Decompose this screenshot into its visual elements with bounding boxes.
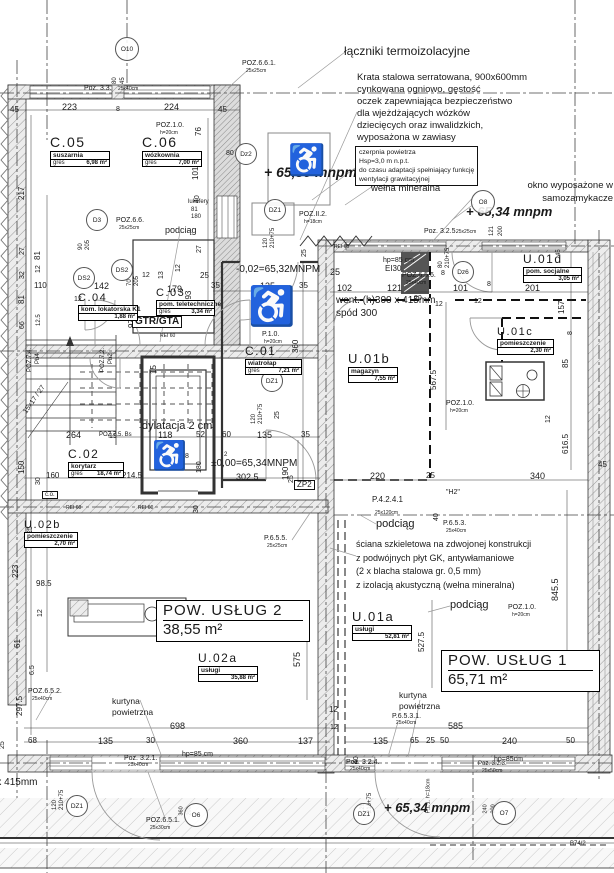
ref-symbol: DS2	[73, 267, 95, 289]
dim-label: POZ.6.5.2.	[28, 688, 62, 695]
dim-label: hp=85 cm	[182, 751, 213, 758]
dim-label: 135	[98, 737, 113, 746]
room-label: C.05suszarniagres6,98 m²	[50, 134, 110, 167]
room-name: korytarz	[69, 463, 123, 471]
room-id: C.06	[142, 134, 202, 150]
dim-label: REI 60	[160, 334, 175, 339]
dim-label: 210+75	[270, 228, 276, 248]
dim-label: 45	[218, 106, 227, 114]
dim-label: POZ.6.5.6.	[402, 272, 436, 279]
annotation-line: oczek zapewniająca bezpieczeństwo	[357, 96, 527, 108]
room-info-box: usługi52,81 m²	[352, 625, 412, 641]
dim-label: 302.5	[236, 473, 259, 482]
annotation-line: okno wyposażone w	[478, 179, 613, 192]
annotation-line: czerpnia powietrza	[359, 148, 474, 157]
dim-label: c.o.	[42, 491, 58, 499]
dim-label: 2	[224, 452, 227, 458]
dim-label: 12	[545, 415, 552, 423]
dim-label: 210+75	[59, 790, 65, 810]
dim-label: 210+75	[445, 248, 451, 268]
room-id: C.01	[245, 344, 302, 358]
room-name: usługi	[353, 626, 411, 634]
room-name: pom. teletechniczne	[157, 301, 214, 309]
dim-label: 19	[109, 433, 117, 440]
annotation-line: powietrzna	[399, 701, 440, 712]
dim-label: 25x30cm	[150, 826, 170, 831]
dim-label: 15	[150, 365, 158, 374]
annotation-line: spód 300	[0, 789, 38, 802]
dim-label: 12	[330, 724, 338, 731]
dim-label: 45	[598, 461, 607, 469]
ref-symbol: D3	[86, 209, 108, 231]
ref-symbol: O7	[492, 801, 516, 825]
dim-label: 25	[426, 472, 435, 480]
room-id: U.01d	[523, 252, 582, 266]
annotation-line: kurtyna	[399, 690, 440, 701]
annotation-line: Hsp=3,0 m n.p.t.	[359, 157, 474, 166]
dim-label: POZ.1.0.	[508, 604, 536, 611]
dim-label: EI30	[385, 265, 401, 273]
room-area-row: gres3,34 m²	[157, 309, 214, 315]
dim-label: 8	[116, 106, 120, 113]
dim-label: 102	[337, 284, 352, 293]
dim-label: 25	[0, 741, 6, 749]
room-name: wózkownia	[143, 152, 201, 160]
dim-label: 12	[37, 609, 44, 617]
dim-label: 135	[257, 431, 272, 440]
room-area: 18,74 m²	[97, 471, 121, 477]
dim-label: 240	[484, 804, 490, 813]
room-area-row: gres18,74 m²	[69, 471, 123, 477]
dim-label: 85	[562, 359, 570, 368]
dim-label: 68	[28, 737, 37, 745]
dim-label: 120	[52, 800, 58, 810]
dim-label: 120	[251, 414, 257, 424]
dim-label: 80	[112, 77, 118, 84]
annotation: łączniki termoizolacyjne	[344, 44, 470, 59]
room-area: 2,30 m²	[530, 348, 551, 354]
dim-label: 223	[12, 565, 20, 578]
room-area: 1,88 m²	[114, 314, 135, 320]
area-title: POW. USŁUG 2	[163, 602, 303, 619]
dim-label: 45	[120, 77, 126, 84]
room-info-box: kom. lokatorska K11,88 m²	[78, 305, 138, 321]
dim-label: 101	[453, 284, 468, 293]
dim-label: 27	[19, 247, 26, 255]
dim-label: 527.5	[418, 632, 426, 652]
dim-label: 121	[489, 226, 495, 236]
dim-label: 25x120cm	[375, 511, 398, 516]
dim-label: 25x40cm	[396, 721, 416, 726]
room-id: U.02a	[198, 651, 258, 665]
dim-label: 40	[433, 513, 440, 521]
annotation-line: spód 300	[336, 307, 436, 320]
dim-label: POZ.6.6.	[116, 217, 144, 224]
room-area: 3,34 m²	[191, 309, 212, 315]
dim-label: 32	[19, 271, 26, 279]
dim-label: POZ.6.6.1.	[242, 60, 276, 67]
room-info-box: pomieszczenie2,70 m²	[24, 532, 78, 548]
ref-symbol: O6	[184, 803, 208, 827]
pavement-band	[0, 798, 614, 868]
dim-label: POZ.1.0.	[446, 400, 474, 407]
dim-label: 52	[196, 431, 205, 439]
room-label: C.03pom. teletechnicznegres3,34 m²	[156, 287, 215, 316]
dim-label: 223	[62, 103, 77, 112]
dim-label: h=20cm	[450, 409, 468, 414]
dim-label: luksfery	[188, 199, 209, 205]
dim-label: Poz. 3.2.5.	[424, 228, 457, 235]
room-label: U.01dpom. socjalne3,05 m²	[523, 252, 582, 283]
dim-label: 25x25cm	[267, 544, 287, 549]
dim-label: Pb2	[108, 353, 114, 364]
dim-label: P.6.5.5.	[264, 535, 287, 542]
dim-label: 45	[10, 106, 19, 114]
room-label: C.04kom. lokatorska K11,88 m²	[78, 292, 138, 321]
dim-label: 224	[164, 103, 179, 112]
room-label: C.02korytarzgres18,74 m²	[68, 447, 124, 478]
room-label: U.01ausługi52,81 m²	[352, 609, 412, 641]
dim-label: 81	[34, 251, 42, 260]
dim-label: 205	[85, 240, 91, 250]
dim-label: 30	[146, 737, 155, 745]
dim-label: 567.5	[430, 370, 438, 390]
ref-symbol: DZ1	[66, 795, 88, 817]
dim-label: 360	[233, 737, 248, 746]
dim-label: 61	[14, 639, 22, 648]
annotation: ściana szkieletowa na zdwojonej konstruk…	[356, 538, 531, 592]
room-label: C.01wiatrołapgres7,21 m²	[245, 344, 302, 375]
dim-label: 25x40cm	[32, 697, 52, 702]
annotation: kurtynapowietrzna	[399, 690, 440, 712]
room-label: U.02bpomieszczenie2,70 m²	[24, 519, 78, 548]
dim-label: 25	[200, 272, 209, 280]
room-name: pom. socjalne	[524, 268, 581, 276]
dim-label: 30	[35, 477, 42, 485]
room-name: pomieszczenie	[25, 533, 77, 541]
dim-label: POZ.7.4.	[27, 348, 33, 372]
dim-label: 180	[196, 461, 203, 473]
dim-label: 60	[222, 431, 231, 439]
dim-label: 210+75	[258, 404, 264, 424]
room-area-row: 7,55 m²	[349, 376, 397, 382]
annotation: czerpnia powietrzaHsp=3,0 m n.p.t.do cza…	[355, 146, 478, 186]
annotation: Krata stalowa serratowana, 900x600mmcynk…	[357, 72, 527, 144]
annotation-line: kurtyna	[112, 696, 153, 707]
room-finish: gres	[159, 309, 171, 315]
dim-label: 25x40cm	[446, 529, 466, 534]
dim-label: 25	[301, 249, 308, 257]
dim-label: 101	[192, 167, 200, 180]
ref-symbol: O10	[115, 37, 139, 61]
room-label: U.02ausługi35,88 m²	[198, 651, 258, 682]
annotation: okno wyposażone wsamozamykacze	[478, 179, 613, 205]
dim-label: 142	[94, 282, 109, 291]
room-name: suszarnia	[51, 152, 109, 160]
room-area: 6,98 m²	[86, 160, 107, 166]
dim-label: POZ.II.2.	[299, 211, 327, 218]
dim-label: 25	[426, 737, 435, 745]
dim-label: P.6.5.3.1.	[392, 713, 421, 720]
annotation-line: z podwójnych płyt GK, antywłamaniowe	[356, 552, 531, 566]
dim-label: 118	[158, 431, 172, 440]
dim-label: 845.5	[551, 578, 560, 601]
dim-label: 12	[175, 264, 182, 272]
ref-symbol: Dz6	[452, 261, 474, 283]
dim-label: 81	[18, 295, 26, 304]
dim-label: 27	[196, 245, 203, 253]
annotation-line: do czasu adaptacji spełniający funkcję	[359, 166, 474, 175]
room-area-row: 52,81 m²	[353, 634, 411, 640]
dim-label: 8	[487, 281, 491, 288]
room-name: pomieszczenie	[498, 340, 553, 348]
room-id: U.01b	[348, 351, 398, 366]
room-info-box: pom. socjalne3,05 m²	[523, 267, 582, 283]
annotation: went. (h)300 x 415mmspód 300	[336, 294, 436, 320]
dim-label: GTR/GTA	[132, 316, 182, 328]
dim-label: 40	[353, 756, 360, 764]
room-id: U.01c	[497, 326, 554, 338]
dim-label: 25x40cm	[350, 767, 370, 772]
room-finish: gres	[145, 160, 157, 166]
room-finish: gres	[71, 471, 83, 477]
dim-label: 135	[373, 737, 388, 746]
dim-label: podciąg	[450, 600, 489, 611]
annotation: went. (h)300 x 415mmspód 300	[0, 776, 38, 802]
room-area-row: 3,05 m²	[524, 276, 581, 282]
room-area-row: 2,70 m²	[25, 541, 77, 547]
dim-label: 65	[410, 737, 419, 745]
area-title: POW. USŁUG 1	[448, 652, 593, 669]
dim-label: 150	[18, 461, 26, 474]
dim-label: B74/2	[570, 841, 586, 847]
dim-label: 220	[370, 472, 385, 481]
annotation-line: łączniki termoizolacyjne	[344, 44, 470, 59]
dim-label: 35	[299, 282, 308, 290]
room-finish: gres	[248, 368, 260, 374]
annotation-line: powietrzna	[112, 707, 153, 718]
room-info-box: pomieszczenie2,30 m²	[497, 339, 554, 355]
dim-label: 25	[330, 268, 340, 277]
dim-label: 80	[226, 150, 234, 157]
dim-label: REI 60	[334, 245, 349, 250]
dim-label: 240	[502, 737, 517, 746]
room-area: 2,70 m²	[54, 541, 75, 547]
dim-label: P.4.2.4.1	[372, 496, 403, 504]
dim-label: 585	[448, 722, 463, 731]
dim-label: h=18cm	[304, 220, 322, 225]
annotation-line: dziecięcych oraz inwalidzkich,	[357, 120, 527, 132]
dim-label: 214.5	[122, 472, 142, 480]
annotation-line: samozamykacze	[478, 192, 613, 205]
dim-label: 13	[158, 271, 165, 279]
floor-plan-page: 45223822445768045Poz. 3.3.25x40cmPOZ.6.6…	[0, 0, 614, 873]
room-finish: gres	[53, 160, 65, 166]
dim-label: REI 60	[66, 506, 81, 511]
usable-area-box: POW. USŁUG 165,71 m²	[441, 650, 600, 692]
dim-label: 217	[18, 187, 26, 200]
room-id: C.05	[50, 134, 110, 150]
dim-label: 121	[387, 284, 402, 293]
dim-label: Pb4	[35, 353, 41, 364]
dim-label: 12	[329, 706, 338, 714]
dim-label: Poz. 3.2.1.	[124, 755, 157, 762]
insulation-zigzag	[1, 88, 8, 520]
annotation: wełna mineralna	[371, 183, 440, 195]
annotation-line: went. (h)300 x 415mm	[0, 776, 38, 789]
dim-label: 81	[191, 207, 198, 213]
room-name: usługi	[199, 667, 257, 675]
dim-label: 50	[440, 737, 449, 745]
dim-label: "H2"	[446, 489, 460, 496]
room-label: U.01cpomieszczenie2,30 m²	[497, 326, 554, 355]
annotation-line: went. (h)300 x 415mm	[336, 294, 436, 307]
dim-label: REI 60	[138, 506, 153, 511]
room-info-box: korytarzgres18,74 m²	[68, 462, 124, 478]
dim-label: Poz. 3.2.3.	[478, 761, 507, 767]
dim-label: 25	[274, 411, 281, 419]
dim-label: P.6.5.3.	[443, 520, 466, 527]
room-area-row: gres7,00 m²	[143, 160, 201, 166]
dim-label: 25x25cm	[119, 226, 139, 231]
dim-label: 110	[34, 282, 47, 290]
dim-label: POZ.6.5.1.	[146, 817, 180, 824]
dim-label: 70	[127, 279, 133, 286]
wheelchair-icon: ♿	[288, 146, 325, 176]
room-area-row: gres6,98 m²	[51, 160, 109, 166]
dim-label: 90	[78, 243, 84, 250]
room-area-row: 35,88 m²	[199, 675, 257, 681]
annotation-line: ściana szkieletowa na zdwojonej konstruk…	[356, 538, 531, 552]
room-id: C.03	[156, 287, 215, 299]
dim-label: 200	[498, 226, 504, 236]
dim-label: 25x25cm	[246, 69, 266, 74]
room-label: C.06wózkowniagres7,00 m²	[142, 134, 202, 167]
annotation-line: (2 x blacha stalowa gr. 0,5 mm)	[356, 565, 531, 579]
room-info-box: magazyn7,55 m²	[348, 367, 398, 383]
room-name: wiatrołap	[246, 360, 301, 368]
room-area-row: 2,30 m²	[498, 348, 553, 354]
dim-label: 157	[558, 301, 566, 314]
dim-label: 180	[191, 214, 201, 220]
dim-label: 575	[293, 652, 302, 667]
dim-label: 80	[438, 261, 444, 268]
annotation-line: Krata stalowa serratowana, 900x600mm	[357, 72, 527, 84]
dim-label: 12	[142, 272, 150, 279]
dim-label: 340	[530, 472, 545, 481]
dim-label: Poz. 3.3.	[84, 85, 112, 92]
dim-label: 25x50cm	[482, 769, 502, 774]
wheelchair-icon: ♿	[248, 288, 295, 326]
dim-label: 30	[193, 505, 200, 513]
dim-label: 8	[567, 331, 574, 335]
annotation-line: cynkowana ogniowo, gęstość	[357, 84, 527, 96]
room-area: 7,21 m²	[278, 368, 299, 374]
dim-label: 25x40cm	[118, 87, 138, 92]
dim-label: ZP2	[294, 480, 315, 490]
dim-label: 35	[301, 431, 310, 439]
usable-area-box: POW. USŁUG 238,55 m²	[156, 600, 310, 642]
dim-label: 25x25cm	[456, 230, 476, 235]
room-area: 52,81 m²	[385, 634, 409, 640]
dim-label: 12	[35, 265, 42, 273]
ref-symbol: DZ1	[353, 803, 375, 825]
dim-label: hp=85 cm	[383, 257, 414, 264]
room-area: 35,88 m²	[231, 675, 255, 681]
room-info-box: wózkowniagres7,00 m²	[142, 151, 202, 167]
room-name: magazyn	[349, 368, 397, 376]
dim-label: P.1.0.	[262, 331, 279, 338]
dim-label: P.1.1. h=18cm	[427, 779, 433, 814]
dim-label: P. 4.2.5. 25x60cm	[0, 610, 2, 658]
annotation-line: dla wjeżdżających wózków	[357, 108, 527, 120]
dim-label: 66	[19, 321, 26, 329]
room-info-box: wiatrołapgres7,21 m²	[245, 359, 302, 375]
area-value: 38,55 m²	[163, 620, 303, 638]
room-info-box: suszarniagres6,98 m²	[50, 151, 110, 167]
room-id: U.02b	[24, 519, 78, 531]
dim-label: 25x40cm	[406, 281, 426, 286]
room-area: 7,55 m²	[374, 376, 395, 382]
area-value: 65,71 m²	[448, 670, 593, 688]
wheelchair-icon: ♿	[152, 442, 187, 470]
dim-label: 160	[46, 472, 59, 480]
annotation-line: wyposażona w zawiasy	[357, 132, 527, 144]
dim-label: podciąg	[376, 519, 415, 530]
dim-label: podciąg	[165, 226, 197, 235]
dim-label: 616.5	[562, 434, 570, 454]
room-label: U.01bmagazyn7,55 m²	[348, 351, 398, 383]
room-info-box: pom. teletechnicznegres3,34 m²	[156, 300, 215, 316]
dim-label: 201	[525, 284, 540, 293]
room-id: U.01a	[352, 609, 412, 624]
room-area: 7,00 m²	[178, 160, 199, 166]
dim-label: 297.5	[16, 696, 24, 716]
annotation: kurtynapowietrzna	[112, 696, 153, 718]
dim-label: 12	[474, 298, 482, 305]
room-area-row: 1,88 m²	[79, 314, 137, 320]
dim-label: POZ.7.2.	[100, 348, 106, 372]
dim-label: POZ.1.0.	[156, 122, 184, 129]
dim-label: -0,02=65,32MNPM	[236, 265, 320, 275]
ref-symbol: DZ1	[264, 199, 286, 221]
dim-label: 12.5	[36, 314, 42, 326]
room-area-row: gres7,21 m²	[246, 368, 301, 374]
dim-label: 120	[263, 238, 269, 248]
dim-label: 12	[435, 301, 443, 308]
dim-label: 205	[134, 276, 140, 286]
dim-label: h=20cm	[512, 613, 530, 618]
ref-symbol: Dz2	[235, 143, 257, 165]
room-name: kom. lokatorska K1	[79, 306, 137, 314]
dim-label: 8	[441, 270, 445, 277]
annotation-line: wełna mineralna	[371, 183, 440, 195]
room-id: C.02	[68, 447, 124, 461]
room-info-box: usługi35,88 m²	[198, 666, 258, 682]
dim-label: 137	[298, 737, 313, 746]
dim-label: Poz. 3.2.4.	[346, 759, 379, 766]
dim-label: 698	[170, 722, 185, 731]
dim-label: 6.5	[29, 665, 36, 675]
room-id: C.04	[78, 292, 138, 304]
room-area: 3,05 m²	[558, 276, 579, 282]
dim-label: 50	[566, 737, 575, 745]
ref-symbol: DS2	[111, 259, 133, 281]
dim-label: 264	[66, 431, 81, 440]
annotation-line: z izolacją akustyczną (wełna mineralna)	[356, 579, 531, 593]
dim-label: 98.5	[36, 580, 52, 588]
dim-label: 25x40cm	[128, 763, 148, 768]
